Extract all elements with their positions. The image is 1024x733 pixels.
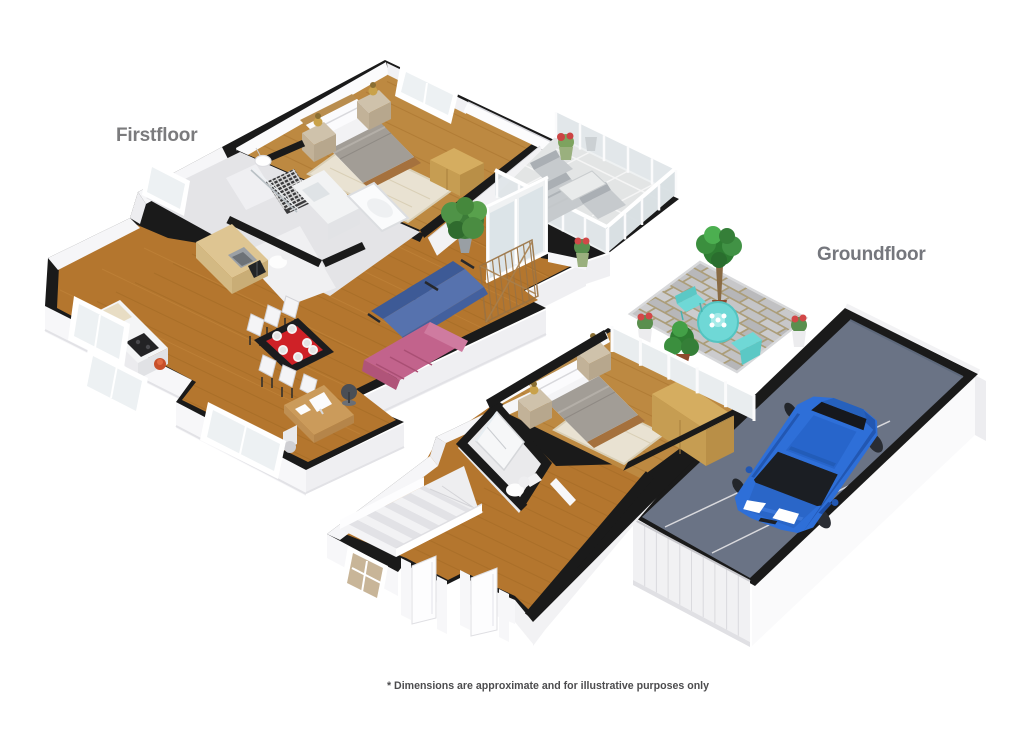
svg-text:* Dimensions are approximate a: * Dimensions are approximate and for ill… <box>387 680 709 692</box>
svg-text:Groundfloor: Groundfloor <box>817 244 926 265</box>
svg-text:Firstfloor: Firstfloor <box>116 125 198 146</box>
